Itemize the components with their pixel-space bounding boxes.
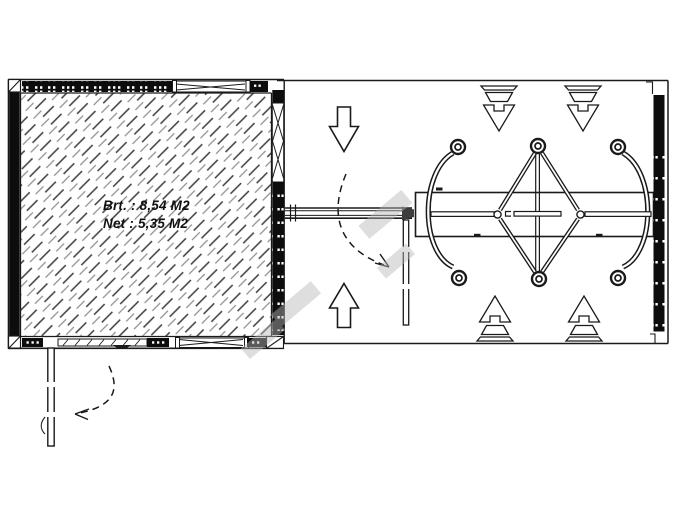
corner-mark-top-right [646, 82, 653, 94]
seat-symbol-top-left [481, 86, 517, 131]
entry-door-swing-arrow [80, 366, 114, 413]
swing-frame [416, 139, 654, 286]
net-area-label: Net : 5,35 M2 [103, 216, 188, 231]
bottom-sill [58, 339, 147, 346]
storage-top-wall [9, 80, 285, 94]
bottom-window [176, 338, 249, 349]
middle-wall-window [272, 103, 283, 182]
seat-symbol-bottom-right [566, 296, 602, 341]
top-window [173, 81, 251, 93]
gross-area-label: Brt. : 8,54 M2 [103, 198, 190, 213]
open-room-right-wall [654, 95, 665, 332]
up-block-arrow-icon [330, 284, 359, 328]
entry-door-leaf [48, 348, 54, 446]
down-block-arrow-icon [330, 107, 359, 152]
floor-plan-page: Brt. : 8,54 M2 Net : 5,35 M2 [0, 0, 686, 515]
seat-symbol-bottom-left [477, 296, 513, 341]
hatched-floor-area [21, 93, 271, 336]
entry-door [41, 348, 114, 446]
storage-left-wall [9, 80, 21, 349]
seat-symbol-top-right [565, 86, 601, 131]
partition-wall-middle [272, 81, 285, 344]
corner-mark-bottom-right [650, 334, 655, 343]
beam-slots [431, 212, 651, 217]
interior-door-leaf [403, 220, 408, 325]
open-room [277, 81, 668, 344]
floor-plan-drawing: Brt. : 8,54 M2 Net : 5,35 M2 [0, 0, 686, 515]
storage-room: Brt. : 8,54 M2 Net : 5,35 M2 [9, 80, 285, 447]
